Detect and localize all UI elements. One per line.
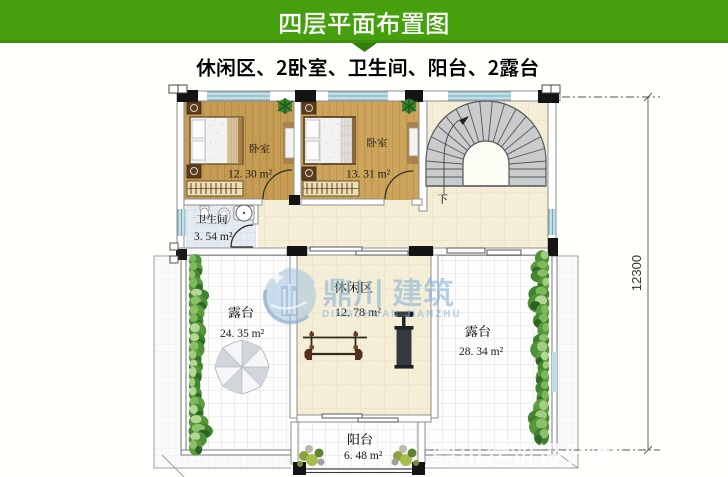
svg-text:DINGCHUAN JIANZHU: DINGCHUAN JIANZHU — [322, 309, 462, 320]
svg-text:12300: 12300 — [629, 255, 644, 291]
svg-text:3. 54 m²: 3. 54 m² — [194, 231, 233, 243]
svg-text:12. 30 m²: 12. 30 m² — [228, 169, 273, 181]
svg-text:6. 48 m²: 6. 48 m² — [344, 450, 383, 462]
svg-text:28. 34 m²: 28. 34 m² — [459, 346, 504, 358]
svg-text:13. 31 m²: 13. 31 m² — [346, 169, 391, 181]
svg-text:24. 35 m²: 24. 35 m² — [220, 328, 265, 340]
